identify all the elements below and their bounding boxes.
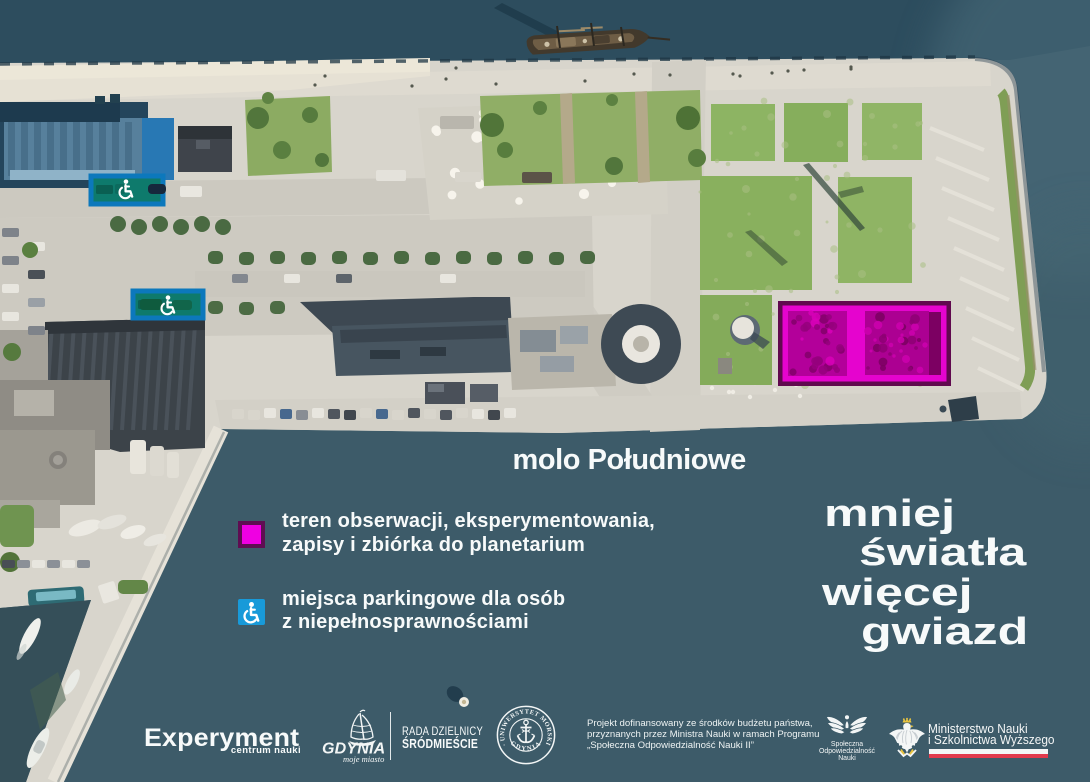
svg-text:moje miasto: moje miasto bbox=[343, 754, 384, 764]
svg-text:Odpowiedzialność: Odpowiedzialność bbox=[819, 748, 875, 755]
svg-text:Nauki: Nauki bbox=[838, 755, 856, 762]
svg-text:· UNIWERSYTET MORSKI ·: · UNIWERSYTET MORSKI · bbox=[496, 705, 553, 747]
svg-text:Społeczna: Społeczna bbox=[831, 741, 863, 748]
